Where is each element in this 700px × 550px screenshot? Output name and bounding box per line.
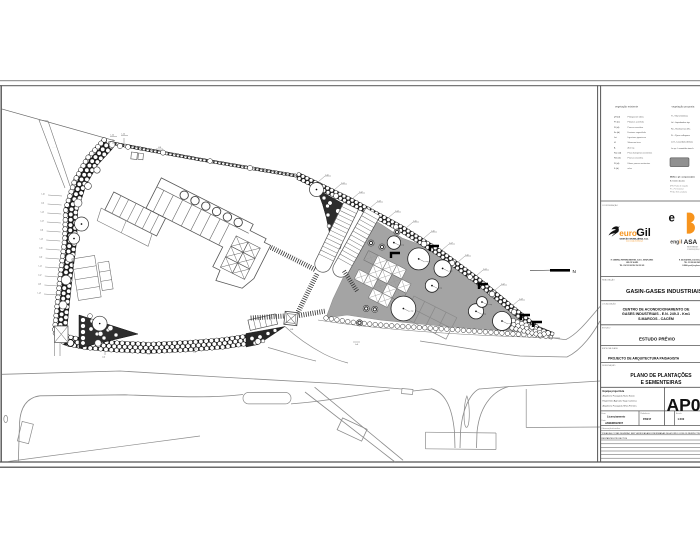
svg-text:COORDENAÇÃO: COORDENAÇÃO — [602, 204, 618, 207]
svg-text:DESIGNAÇÃO: DESIGNAÇÃO — [602, 364, 616, 367]
svg-text:L.a3: L.a3 — [38, 284, 41, 286]
svg-text:L.a2: L.a2 — [193, 351, 196, 353]
svg-text:B. Dentro doutro: B. Dentro doutro — [670, 179, 686, 182]
svg-text:L.a4: L.a4 — [40, 230, 43, 232]
svg-text:Pittosporum tobira: Pittosporum tobira — [628, 116, 645, 119]
svg-text:L.a5: L.a5 — [413, 220, 416, 222]
svg-text:vegetação proposta: vegetação proposta — [672, 105, 695, 109]
svg-text:L.a2: L.a2 — [38, 275, 41, 277]
svg-text:REALIZAÇÃO: REALIZAÇÃO — [602, 278, 615, 281]
svg-text:Pn - Pré material: Pn - Pré material — [670, 188, 684, 191]
svg-text:ESPECIALIDADE: ESPECIALIDADE — [602, 347, 619, 350]
svg-text:GASES INDUSTRIAIS - E.N. 249-3: GASES INDUSTRIAIS - E.N. 249-3 - Km1 — [622, 312, 690, 316]
svg-text:Fase: Fase — [602, 413, 606, 415]
svg-text:CENTRO DE ACONDICIONAMENTO DE: CENTRO DE ACONDICIONAMENTO DE — [623, 307, 690, 311]
svg-text:Ran (id): Ran (id) — [614, 153, 621, 155]
svg-text:L.a2: L.a2 — [41, 212, 44, 214]
svg-text:c.esp: c.esp — [425, 261, 429, 263]
svg-text:c.esp: c.esp — [482, 313, 486, 315]
svg-text:L.a2: L.a2 — [147, 353, 150, 355]
svg-text:L.a0: L.a0 — [39, 257, 42, 259]
svg-text:L.a2: L.a2 — [359, 191, 362, 193]
svg-text:Arquitecta Paisagista Sílvia F: Arquitecta Paisagista Sílvia Ferreira — [603, 405, 638, 408]
svg-text:N: N — [573, 269, 576, 274]
svg-text:L.a4: L.a4 — [38, 293, 41, 295]
svg-text:L.a3: L.a3 — [40, 221, 43, 223]
svg-text:LOCALIZAÇÃO: LOCALIZAÇÃO — [602, 302, 616, 305]
svg-text:eng: eng — [670, 239, 679, 245]
svg-text:e: e — [669, 213, 675, 225]
svg-text:1:400: 1:400 — [678, 417, 685, 421]
svg-text:L.a6: L.a6 — [39, 248, 42, 250]
svg-text:Ld - Liquidambar styr.: Ld - Liquidambar styr. — [671, 121, 691, 124]
svg-text:JANEIRO/2007: JANEIRO/2007 — [605, 421, 624, 425]
svg-text:Malha x pé: compasso(m): Malha x pé: compasso(m) — [670, 176, 695, 178]
svg-text:L.a5: L.a5 — [40, 239, 43, 241]
svg-text:L.a5: L.a5 — [355, 344, 358, 346]
svg-text:Ro - Rosmarinus offic.: Ro - Rosmarinus offic. — [671, 129, 691, 131]
svg-text:E SEMENTEIRAS: E SEMENTEIRAS — [641, 380, 683, 386]
svg-text:L.05: L.05 — [290, 329, 293, 331]
svg-text:vegetação existente: vegetação existente — [615, 105, 639, 109]
svg-text:c.esp: c.esp — [400, 245, 404, 247]
svg-text:Pc - Pyrus calleryana: Pc - Pyrus calleryana — [671, 135, 691, 137]
svg-text:Pt (id): Pt (id) — [614, 126, 620, 129]
svg-text:Acer sp.: Acer sp. — [628, 146, 636, 149]
svg-text:PROJECTO DE ARQUITECTURA PAISA: PROJECTO DE ARQUITECTURA PAISAGISTA — [608, 356, 680, 360]
svg-text:c.esp: c.esp — [438, 288, 442, 290]
svg-text:Licenciamento: Licenciamento — [607, 415, 626, 419]
svg-text:PLANO DE PLANTAÇÕES: PLANO DE PLANTAÇÕES — [630, 372, 692, 379]
svg-text:Escala: Escala — [676, 413, 683, 415]
svg-text:L.a0: L.a0 — [42, 194, 45, 196]
svg-text:..........: .......... — [52, 147, 58, 149]
svg-text:c.esp: c.esp — [488, 304, 492, 306]
svg-text:Ligustrum japonicum: Ligustrum japonicum — [628, 136, 647, 139]
svg-text:c.esp: c.esp — [449, 270, 453, 272]
svg-text:Pinus halepensis existentes: Pinus halepensis existentes — [628, 152, 653, 155]
svg-text:pH (id): pH (id) — [614, 117, 620, 119]
svg-text:(PR) Prado de regadio: (PR) Prado de regadio — [670, 186, 688, 188]
svg-text:L.a3: L.a3 — [377, 200, 380, 202]
svg-text:c.esp: c.esp — [410, 311, 414, 313]
svg-text:L.a2: L.a2 — [102, 356, 105, 358]
svg-text:Tl - Tilia tomentosa: Tl - Tilia tomentosa — [671, 115, 689, 118]
svg-text:L.a1: L.a1 — [39, 266, 42, 268]
svg-text:L.a1: L.a1 — [41, 203, 44, 205]
svg-text:Pt (id): Pt (id) — [614, 162, 620, 165]
svg-text:L.a1: L.a1 — [341, 182, 344, 184]
svg-text:ESTUDO: ESTUDO — [602, 328, 611, 330]
svg-text:Platanus acerifolia: Platanus acerifolia — [628, 121, 645, 124]
svg-text:Viburnum tinus: Viburnum tinus — [628, 141, 641, 144]
svg-text:L.a0: L.a0 — [465, 254, 468, 256]
svg-text:RESTANTES PROJECTOS: RESTANTES PROJECTOS — [602, 437, 628, 440]
svg-text:P/0217: P/0217 — [643, 417, 652, 421]
svg-text:Observações/revisões: Observações/revisões — [602, 427, 621, 430]
svg-text:L.a6: L.a6 — [431, 230, 434, 232]
svg-text:Fraxinus angustifolia: Fraxinus angustifolia — [628, 131, 647, 134]
svg-text:L.05: L.05 — [158, 147, 161, 149]
svg-text:Fe (id): Fe (id) — [614, 132, 620, 134]
svg-text:euro: euro — [619, 229, 637, 238]
svg-text:Referência: Referência — [641, 412, 651, 415]
svg-text:Arquitecto Paisagista Nuno Sou: Arquitecto Paisagista Nuno Souto — [603, 395, 636, 398]
svg-text:Pn (is): Pn (is) — [614, 122, 620, 124]
svg-text:c.esp: c.esp — [508, 323, 512, 325]
svg-text:Rm (id): Rm (id) — [614, 158, 621, 160]
svg-text:L.a3: L.a3 — [519, 298, 522, 300]
svg-text:GASIN-GASES INDUSTRIAIS, S.A.: GASIN-GASES INDUSTRIAIS, S.A. — [626, 289, 700, 295]
svg-text:Lst: Lst — [614, 136, 617, 139]
svg-text:La sp - Lavandula stoech.: La sp - Lavandula stoech. — [671, 147, 694, 150]
svg-text:Prunus cerasifera: Prunus cerasifera — [628, 158, 645, 160]
svg-text:Ulmus procera existentes: Ulmus procera existentes — [628, 162, 651, 165]
svg-text:L.a2: L.a2 — [501, 283, 504, 285]
svg-text:ASA: ASA — [684, 239, 698, 246]
svg-text:Equipa projectista: Equipa projectista — [603, 390, 625, 393]
svg-text:ESTUDO PRÉVIO: ESTUDO PRÉVIO — [639, 337, 676, 342]
svg-text:F (id): F (id) — [614, 168, 619, 170]
svg-text:AP01: AP01 — [667, 395, 700, 415]
svg-text:Prunus cerasifera: Prunus cerasifera — [628, 127, 645, 129]
svg-text:L.a7: L.a7 — [449, 242, 452, 244]
svg-text:PR (L) Sem. pradaria: PR (L) Sem. pradaria — [670, 192, 687, 194]
svg-text:TODAS AS COTAS DEVERÃO SER VER: TODAS AS COTAS DEVERÃO SER VERIFICADAS/C… — [602, 432, 700, 435]
svg-text:L.a4: L.a4 — [395, 210, 398, 212]
svg-text:L.a0: L.a0 — [325, 174, 328, 176]
svg-text:GESTÃO IMOBILIÁRIA, S.A.: GESTÃO IMOBILIÁRIA, S.A. — [620, 237, 649, 240]
svg-text:S.MARCOS - CACÉM: S.MARCOS - CACÉM — [638, 316, 674, 321]
svg-text:L.a1: L.a1 — [483, 268, 486, 270]
svg-text:Engenheiro Agrícola Tiago Cane: Engenheiro Agrícola Tiago Caneiras — [603, 400, 637, 403]
svg-text:LcG - Lavandula dentata: LcG - Lavandula dentata — [671, 141, 694, 144]
